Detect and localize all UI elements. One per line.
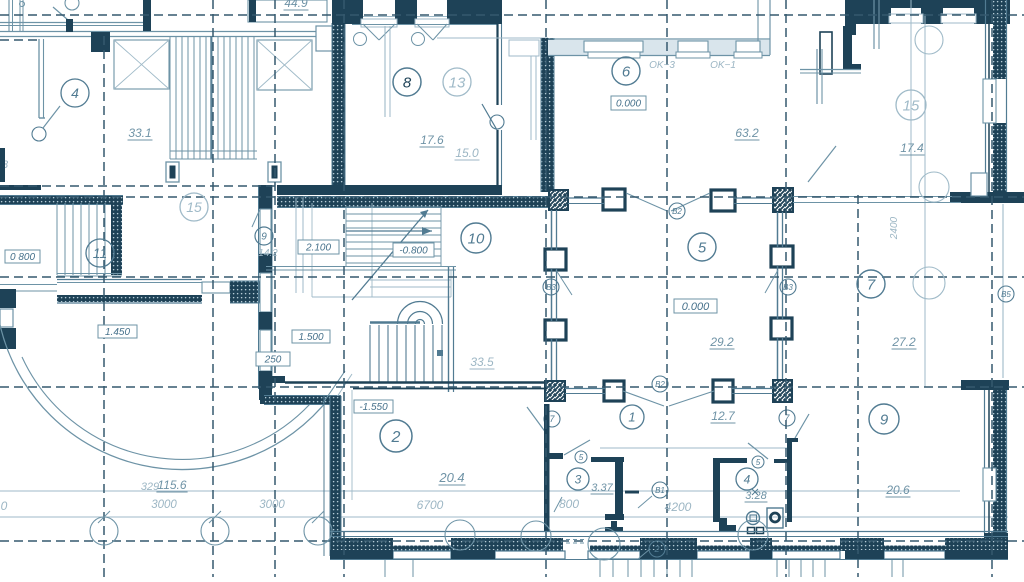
svg-text:20.4: 20.4: [438, 470, 464, 485]
svg-text:5: 5: [698, 239, 707, 256]
svg-text:6700: 6700: [417, 498, 444, 512]
svg-text:20.6: 20.6: [885, 483, 910, 497]
svg-text:-1.550: -1.550: [359, 402, 388, 413]
svg-text:0 800: 0 800: [10, 252, 35, 263]
svg-text:4: 4: [744, 472, 751, 486]
svg-text:1.500: 1.500: [298, 332, 323, 343]
svg-text:33.5: 33.5: [470, 355, 494, 369]
svg-text:B3: B3: [783, 283, 793, 292]
svg-text:29.2: 29.2: [709, 335, 734, 349]
svg-text:B3: B3: [546, 283, 556, 292]
svg-text:0.000: 0.000: [616, 99, 641, 110]
svg-text:4200: 4200: [665, 500, 692, 514]
svg-text:3000: 3000: [151, 499, 177, 511]
svg-text:B2: B2: [655, 380, 665, 389]
svg-text:13: 13: [449, 74, 466, 91]
svg-text:3000: 3000: [259, 499, 285, 511]
svg-text:329: 329: [141, 481, 159, 493]
svg-text:2.100: 2.100: [305, 243, 331, 254]
svg-text:-0.800: -0.800: [399, 246, 428, 257]
svg-text:800: 800: [559, 497, 579, 511]
svg-text:27.2: 27.2: [891, 335, 916, 349]
svg-text:4: 4: [71, 85, 79, 101]
svg-text:6: 6: [622, 63, 631, 80]
svg-text:44.9: 44.9: [284, 0, 308, 10]
svg-text:33.1: 33.1: [128, 126, 151, 140]
svg-text:2: 2: [391, 429, 401, 446]
svg-text:0.000: 0.000: [682, 301, 710, 313]
svg-text:14.2: 14.2: [258, 248, 278, 259]
svg-text:5: 5: [579, 453, 584, 462]
svg-text:15: 15: [186, 199, 202, 215]
svg-text:7: 7: [867, 276, 876, 293]
svg-text:115.6: 115.6: [157, 478, 186, 492]
svg-text:1.450: 1.450: [105, 327, 130, 338]
svg-text:B2: B2: [672, 207, 682, 216]
svg-text:0: 0: [1, 499, 8, 513]
svg-text:3.28: 3.28: [745, 490, 767, 502]
svg-text:1: 1: [628, 410, 635, 425]
svg-text:250: 250: [264, 355, 282, 366]
svg-text:9: 9: [261, 232, 267, 243]
svg-text:3: 3: [575, 472, 582, 486]
svg-text:11: 11: [93, 245, 108, 261]
svg-text:B5: B5: [1001, 290, 1011, 299]
svg-text:63.2: 63.2: [735, 126, 759, 140]
svg-text:2: 2: [653, 544, 659, 554]
svg-text:5: 5: [756, 458, 761, 467]
svg-text:8: 8: [403, 74, 412, 91]
svg-text:3.37: 3.37: [591, 482, 613, 494]
svg-text:17.6: 17.6: [420, 133, 444, 147]
svg-text:12.7: 12.7: [711, 409, 736, 423]
svg-text:OK−3: OK−3: [649, 60, 675, 71]
svg-text:17.4: 17.4: [900, 141, 924, 155]
svg-text:B1: B1: [655, 486, 665, 495]
svg-text:15: 15: [903, 97, 920, 114]
svg-text:OK−1: OK−1: [710, 60, 736, 71]
svg-text:10: 10: [468, 230, 485, 247]
svg-text:2400: 2400: [889, 216, 900, 240]
svg-text:15.0: 15.0: [455, 146, 479, 160]
svg-text:9: 9: [880, 411, 889, 428]
